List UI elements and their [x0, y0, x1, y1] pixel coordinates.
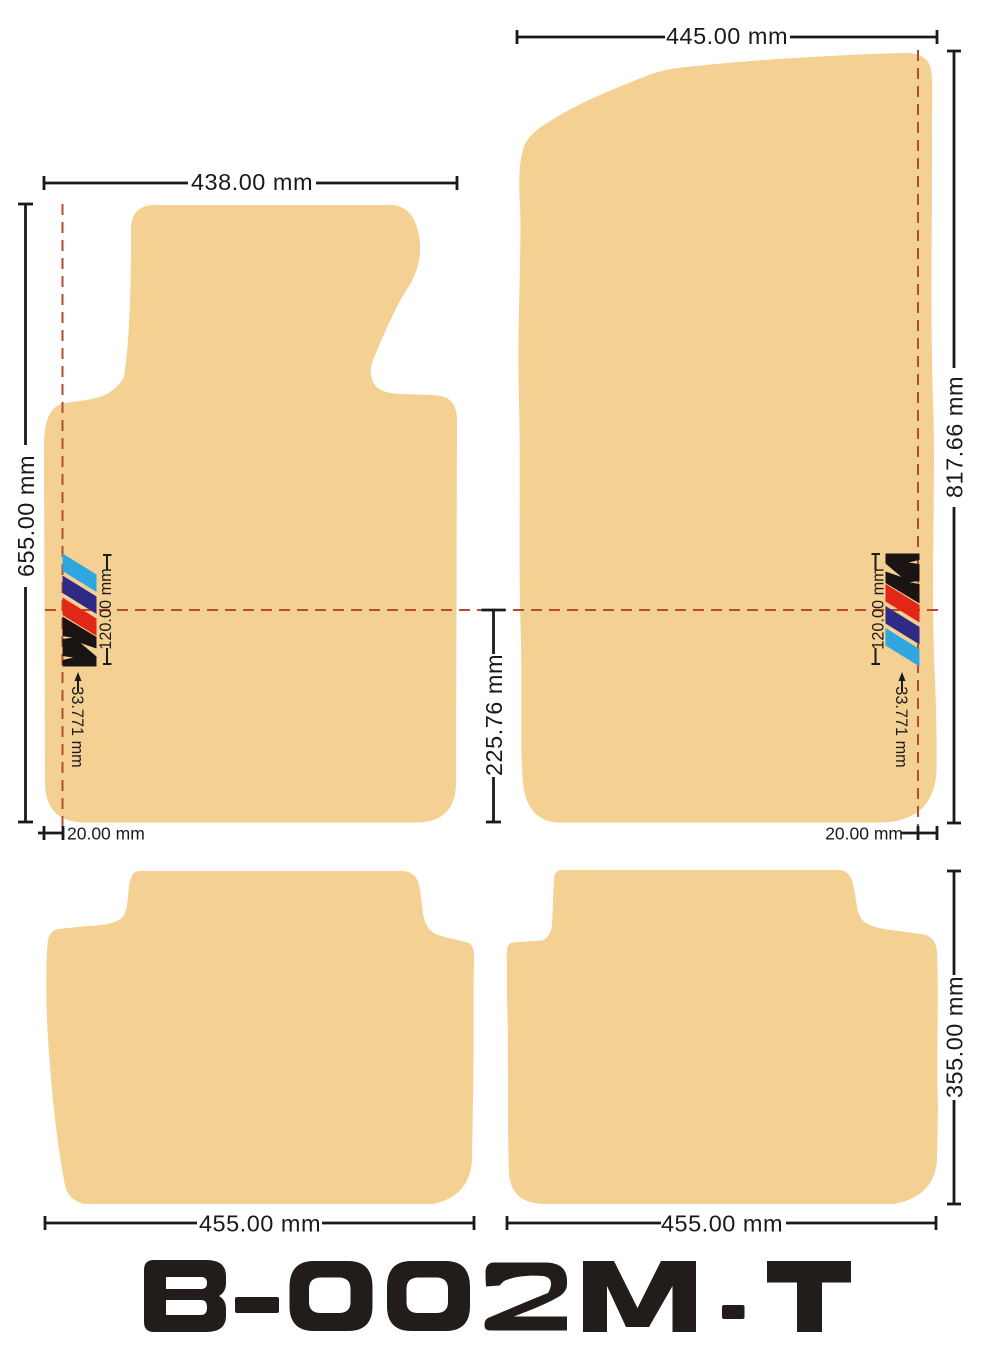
svg-text:33.771 mm: 33.771 mm [892, 686, 910, 767]
svg-text:20.00 mm: 20.00 mm [825, 824, 903, 844]
svg-text:20.00 mm: 20.00 mm [67, 824, 145, 844]
svg-text:33.771 mm: 33.771 mm [68, 686, 86, 767]
svg-text:817.66 mm: 817.66 mm [942, 376, 968, 498]
svg-text:120.00 mm: 120.00 mm [870, 568, 888, 649]
svg-text:438.00 mm: 438.00 mm [191, 169, 313, 195]
svg-text:455.00 mm: 455.00 mm [199, 1211, 321, 1237]
svg-text:225.76 mm: 225.76 mm [481, 654, 507, 776]
svg-text:120.00 mm: 120.00 mm [97, 568, 115, 649]
svg-text:455.00 mm: 455.00 mm [661, 1211, 783, 1237]
svg-text:655.00 mm: 655.00 mm [13, 455, 39, 577]
svg-text:445.00 mm: 445.00 mm [666, 23, 788, 49]
svg-text:355.00 mm: 355.00 mm [942, 976, 968, 1098]
